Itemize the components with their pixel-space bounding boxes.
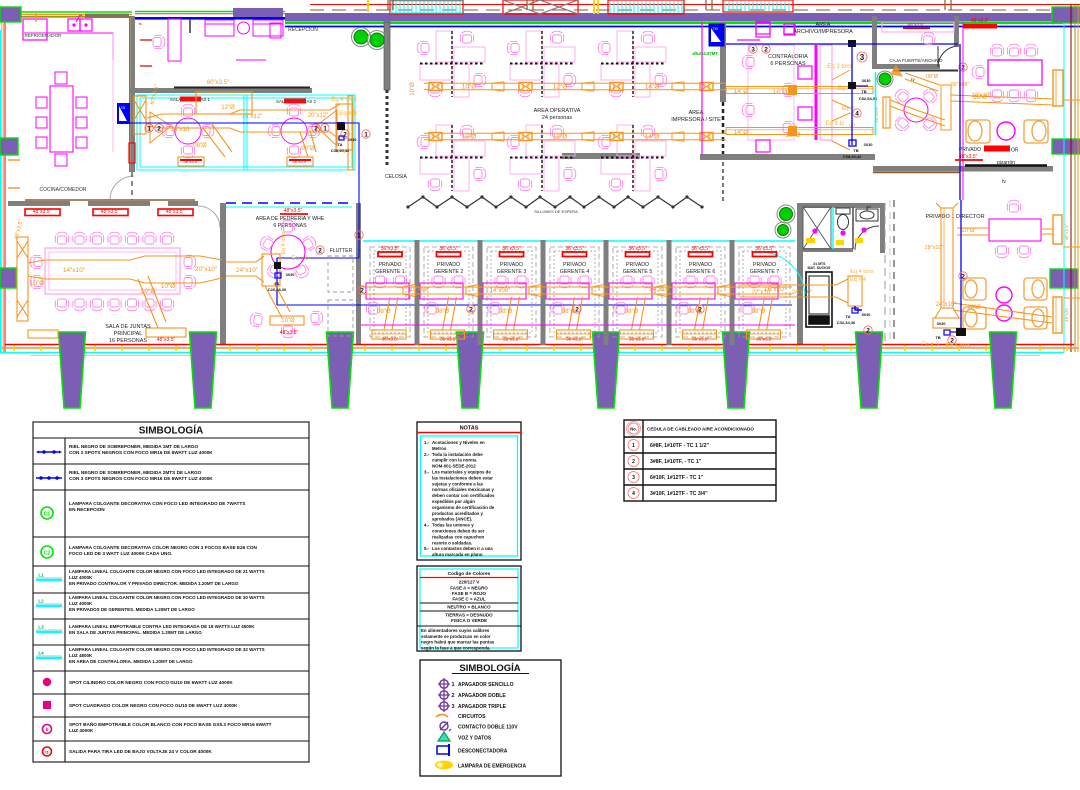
svg-text:TM: TM [712,27,717,31]
svg-text:n.: n. [139,21,143,26]
svg-text:SPOT BAÑO EMPOTRABLE COLOR BLA: SPOT BAÑO EMPOTRABLE COLOR BLANCO CON FO… [69,721,272,727]
svg-text:10"Ø: 10"Ø [462,84,477,91]
svg-text:C38,40,42: C38,40,42 [331,148,350,153]
svg-text:normas oficiales mexicanas y: normas oficiales mexicanas y [432,487,495,492]
svg-text:Todas las uniones y: Todas las uniones y [432,523,474,528]
svg-text:L4: L4 [38,651,44,656]
svg-text:FISICA O VERDE: FISICA O VERDE [451,618,487,623]
svg-text:48"x3.5": 48"x3.5" [971,18,990,24]
svg-text:deben contar con certificados: deben contar con certificados [432,493,495,498]
svg-text:3.-: 3.- [424,470,430,475]
svg-text:Los materiales y equipos de: Los materiales y equipos de [432,470,491,475]
svg-text:2: 2 [575,306,579,313]
svg-text:3: 3 [860,53,865,62]
svg-text:14"Ø: 14"Ø [734,129,749,136]
svg-text:En alimentadores cuyos calibre: En alimentadores cuyos calibres [421,628,490,633]
svg-text:1: 1 [357,232,361,239]
svg-text:10"Ø: 10"Ø [161,283,176,290]
svg-text:36"x3.5": 36"x3.5" [756,337,773,342]
svg-text:PRINCIPAL: PRINCIPAL [114,331,143,337]
svg-text:ARCHIVO/IMPRESORA: ARCHIVO/IMPRESORA [793,29,853,35]
svg-text:CEDULA DE CABLEADO AIRE ACONDI: CEDULA DE CABLEADO AIRE ACONDICIONADO [647,427,754,432]
svg-text:08"Ø: 08"Ø [377,309,391,315]
svg-text:36"x3.5": 36"x3.5" [629,337,646,342]
svg-text:MAT. SUCIOS: MAT. SUCIOS [808,266,831,270]
svg-text:36"x3.5": 36"x3.5" [184,159,199,164]
svg-text:12"Ø: 12"Ø [221,105,235,111]
svg-text:Codigo de Colores: Codigo de Colores [448,571,491,577]
svg-text:08"Ø: 08"Ø [193,143,207,149]
svg-text:conexiones deben de ser: conexiones deben de ser [432,529,485,534]
svg-text:24 personas: 24 personas [542,115,573,121]
svg-text:TA: TA [121,106,126,110]
svg-text:GERENTE 1: GERENTE 1 [375,269,405,275]
svg-text:b: b [46,727,49,732]
svg-text:altura marcada en plano: altura marcada en plano [432,552,483,557]
svg-text:10"Ø: 10"Ø [141,288,156,295]
svg-text:FASE A = NEGRO: FASE A = NEGRO [450,586,488,591]
svg-text:3X30: 3X30 [862,79,871,83]
svg-text:48"x3.5": 48"x3.5" [166,209,185,215]
svg-text:10"Ø: 10"Ø [30,280,45,287]
svg-text:08"Ø: 08"Ø [436,309,450,315]
svg-text:Eq 4 tons: Eq 4 tons [850,269,873,275]
svg-text:18'x10': 18'x10' [972,93,991,99]
svg-text:L1: L1 [38,573,44,578]
svg-text:.01 MTS: .01 MTS [813,262,827,266]
svg-text:NOM-001-SEDE-2012: NOM-001-SEDE-2012 [432,464,476,469]
svg-text:cumplir con la norma: cumplir con la norma [432,458,477,463]
svg-text:3#8F, 1#10TF, - TC 1": 3#8F, 1#10TF, - TC 1" [650,459,702,465]
svg-text:36"x3.5": 36"x3.5" [440,337,457,342]
svg-text:NOTAS: NOTAS [460,426,479,432]
svg-text:2: 2 [764,46,768,53]
svg-text:48"x3.5": 48"x3.5" [1064,223,1069,240]
svg-text:36"x3.5": 36"x3.5" [566,337,583,342]
svg-text:según la fase a que correspond: según la fase a que corresponda. [421,645,491,650]
svg-text:10"Ø: 10"Ø [462,134,477,141]
svg-text:TA: TA [274,281,279,286]
svg-text:2: 2 [632,459,635,465]
svg-text:LAMPARA LINEAL COLGANTE COLOR: LAMPARA LINEAL COLGANTE COLOR NEGRO CON … [69,595,265,600]
svg-text:Los contactos deben ir a una: Los contactos deben ir a una [432,546,493,551]
svg-text:22"x10": 22"x10" [752,290,773,296]
svg-text:Eq 4 tons: Eq 4 tons [281,231,287,254]
svg-text:pizarrón: pizarrón [997,160,1015,166]
svg-text:LUZ 4000K: LUZ 4000K [69,601,93,606]
svg-text:14"x10: 14"x10 [171,127,190,133]
svg-text:14"x10": 14"x10" [63,267,86,274]
svg-text:GERENTE 7: GERENTE 7 [750,269,780,275]
svg-text:altura1.67MT: altura1.67MT [692,51,718,56]
svg-text:1: 1 [451,682,454,688]
svg-text:PRIVADO: PRIVADO [753,262,776,268]
svg-text:36"x3.5": 36"x3.5" [692,337,709,342]
svg-text:negro habrá que marcar las pun: negro habrá que marcar las puntas [421,640,495,645]
svg-text:CON 2 SPOTS NEGROS CON FOCO MR: CON 2 SPOTS NEGROS CON FOCO MR16 DE 6WAT… [69,450,213,455]
svg-text:IMPRESORA / SITE: IMPRESORA / SITE [671,117,721,123]
svg-text:NEUTRO = BLANCO: NEUTRO = BLANCO [447,605,491,610]
svg-text:1.-: 1.- [424,440,430,445]
svg-text:Eq # 4: Eq # 4 [850,277,866,283]
svg-text:Toda la instalación debe: Toda la instalación debe [432,452,483,457]
svg-text:realizadas con capuchon: realizadas con capuchon [432,534,485,539]
svg-text:Eq 4 tons: Eq 4 tons [945,343,970,349]
svg-text:48"x3.5": 48"x3.5" [33,209,52,215]
svg-text:GERENTE 3: GERENTE 3 [497,269,527,275]
svg-text:24"x10": 24"x10" [236,267,259,274]
svg-text:2.-: 2.- [424,452,430,457]
svg-text:08"Ø: 08"Ø [499,309,513,315]
svg-text:VOZ Y DATOS: VOZ Y DATOS [458,736,492,742]
svg-text:TIERRAS = DESNUDO: TIERRAS = DESNUDO [445,613,493,618]
svg-text:C1: C1 [44,512,51,518]
svg-text:2: 2 [314,125,318,132]
svg-text:LAMPARA COLGANTE DECORATIVA CO: LAMPARA COLGANTE DECORATIVA COLOR NEGRO … [69,545,258,550]
svg-text:4: 4 [855,110,859,117]
svg-text:3X30: 3X30 [286,273,295,277]
svg-text:12"Ø: 12"Ø [553,84,568,91]
svg-text:No.: No. [630,427,637,432]
svg-text:L3: L3 [38,625,44,630]
svg-text:08"Ø: 08"Ø [625,309,639,315]
svg-text:TA: TA [845,314,850,319]
svg-text:EN PRIVADO CONTRALOR Y PRIVADO: EN PRIVADO CONTRALOR Y PRIVADO DIRECTOR.… [69,581,239,586]
svg-text:14"Ø: 14"Ø [645,84,660,91]
svg-text:TB: TB [853,148,858,153]
svg-text:TA: TA [337,142,342,147]
svg-text:16"Ø: 16"Ø [773,89,788,96]
svg-text:FASE B = ROJO: FASE B = ROJO [452,591,487,596]
svg-text:18"x10": 18"x10" [925,245,944,251]
svg-text:Acotaciones y Niveles en: Acotaciones y Niveles en [432,440,485,445]
svg-text:48"x3.5": 48"x3.5" [280,330,299,336]
svg-text:GERENTE 6: GERENTE 6 [686,269,716,275]
svg-text:LAMPARA LINEAL COLGANTE COLOR: LAMPARA LINEAL COLGANTE COLOR NEGRO CON … [69,569,265,574]
svg-text:SALA DE JUNTAS: SALA DE JUNTAS [105,324,151,330]
svg-text:08"Ø: 08"Ø [562,309,576,315]
svg-text:aprobados (ANCE).: aprobados (ANCE). [432,517,472,522]
svg-text:3#10F, 1#12TF - TC 3/4": 3#10F, 1#12TF - TC 3/4" [650,491,708,497]
svg-text:6#10F, 1#12TF - TC 1": 6#10F, 1#12TF - TC 1" [650,475,704,481]
svg-text:PRIVADO: PRIVADO [437,262,460,268]
svg-text:DESCONECTADORA: DESCONECTADORA [458,749,508,755]
svg-text:LAMPARA COLGANTE DECORATIVA C: LAMPARA COLGANTE DECORATIVA CON FOCO LED… [69,501,245,506]
svg-text:PRIVADO: PRIVADO [959,147,981,153]
svg-text:CON 3 SPOTS NEGROS CON FOCO MR: CON 3 SPOTS NEGROS CON FOCO MR16 DE 6WAT… [69,476,213,481]
svg-text:3X30: 3X30 [348,138,357,142]
svg-text:3: 3 [632,475,635,481]
svg-text:FASE C = AZUL: FASE C = AZUL [452,597,485,602]
svg-text:48"x35: 48"x35 [1064,308,1069,322]
svg-text:las instalaciones deben estar: las instalaciones deben estar [432,475,493,480]
svg-text:AREA DE PEDRERIA Y WHE: AREA DE PEDRERIA Y WHE [256,216,325,222]
svg-text:tv: tv [1002,179,1006,185]
svg-text:PRIVADO: PRIVADO [563,262,586,268]
svg-text:LAMPARA LINEAL COLGANTE COLOR: LAMPARA LINEAL COLGANTE COLOR NEGRO CON … [69,647,265,652]
svg-text:36"x3.5": 36"x3.5" [503,337,520,342]
svg-text:36"x3.5": 36"x3.5" [293,159,308,164]
svg-text:sujetas y conforme a las: sujetas y conforme a las [432,481,484,486]
svg-text:GERENTE 4: GERENTE 4 [560,269,590,275]
svg-text:REFRIGERADOR: REFRIGERADOR [24,33,62,38]
svg-text:1: 1 [364,131,368,138]
svg-text:08"Ø: 08"Ø [301,146,315,152]
svg-text:2: 2 [157,125,161,132]
svg-text:LAMPARA LINEAL EMPOTRABLE CONT: LAMPARA LINEAL EMPOTRABLE CONTRA LED INT… [69,624,255,629]
svg-text:C26,28,30: C26,28,30 [268,287,287,292]
svg-text:PRIVADO: PRIVADO [626,262,649,268]
svg-text:5X30: 5X30 [862,313,871,317]
svg-text:5.-: 5.- [424,546,430,551]
svg-text:Eq # 6: Eq # 6 [291,256,309,262]
svg-text:productos acreditados y: productos acreditados y [432,511,484,516]
svg-text:FLUTTER: FLUTTER [330,248,353,254]
svg-text:12"Ø: 12"Ø [553,134,568,141]
svg-text:C32,34,36: C32,34,36 [837,320,856,325]
svg-text:24"x3.5: 24"x3.5 [874,107,879,123]
svg-text:08"Ø: 08"Ø [752,309,766,315]
svg-text:SILLONES DE ESPERA: SILLONES DE ESPERA [534,209,578,214]
svg-text:1: 1 [323,125,327,132]
svg-text:PRIVADO 1 DIRECTOR: PRIVADO 1 DIRECTOR [925,214,984,220]
svg-text:Eq # 3: Eq # 3 [921,342,939,348]
svg-text:2: 2 [451,693,454,699]
svg-text:SALIDA PARA TIRA LED DE BAJO V: SALIDA PARA TIRA LED DE BAJO VOLTAJE 24 … [69,749,212,754]
svg-text:2: 2 [866,327,870,334]
svg-text:CAJA FUERTE/ARCHIVO: CAJA FUERTE/ARCHIVO [889,58,943,63]
svg-text:4: 4 [632,491,635,497]
svg-text:2: 2 [360,287,364,294]
svg-text:Eq 3 tons: Eq 3 tons [827,64,852,70]
svg-text:48"x3.5": 48"x3.5" [157,337,176,343]
svg-text:LUZ 4800K: LUZ 4800K [69,653,93,658]
svg-text:LUZ 4000K: LUZ 4000K [69,575,93,580]
svg-text:24"x10": 24"x10" [792,290,813,296]
svg-text:GERENTE 2: GERENTE 2 [434,269,464,275]
svg-text:2: 2 [961,273,965,280]
svg-text:20"x12": 20"x12" [308,113,329,119]
svg-text:2: 2 [469,306,473,313]
svg-text:APAGADOR TRIPLE: APAGADOR TRIPLE [458,704,507,710]
svg-text:APAGADOR DOBLE: APAGADOR DOBLE [458,693,506,699]
svg-text:SPOT CILINDRO COLOR NEGRO CON: SPOT CILINDRO COLOR NEGRO CON FOCO GU10 … [69,680,233,685]
svg-text:6#8F, 1#10TF - TC 1 1/2": 6#8F, 1#10TF - TC 1 1/2" [650,443,710,449]
svg-text:220/127 V: 220/127 V [459,580,480,585]
svg-text:resorte o soldadas.: resorte o soldadas. [432,540,472,545]
svg-text:Metros: Metros [432,446,447,451]
svg-text:45"x3.5": 45"x3.5" [908,22,925,27]
svg-text:1: 1 [147,125,151,132]
svg-text:SIMBOLOGÍA: SIMBOLOGÍA [459,663,520,674]
svg-text:CONTRALORIA: CONTRALORIA [768,54,808,60]
svg-text:3X30: 3X30 [937,322,946,326]
svg-text:PRIVADO: PRIVADO [379,262,402,268]
svg-text:18"Ø: 18"Ø [786,132,801,139]
svg-text:RECEPCION: RECEPCION [288,27,318,33]
svg-text:60"x3.5": 60"x3.5" [207,80,229,86]
svg-text:CELOSIA: CELOSIA [385,174,407,180]
svg-text:Eq 4 tons: Eq 4 tons [331,97,356,103]
svg-text:20"x10": 20"x10" [195,266,218,273]
svg-text:SIMBOLOGÍA: SIMBOLOGÍA [139,424,203,437]
svg-text:08"Ø: 08"Ø [926,74,939,80]
svg-text:3: 3 [451,704,454,710]
svg-text:Eq # 5: Eq # 5 [339,111,357,117]
svg-text:RIEL NEGRO DE SOBREPONER, MEDI: RIEL NEGRO DE SOBREPONER, MEDIDA 1MT DE … [69,444,199,449]
svg-text:3X30: 3X30 [864,143,873,147]
svg-text:AREA OPERATIVA: AREA OPERATIVA [534,108,581,114]
svg-text:C58,40,42: C58,40,42 [843,154,862,159]
svg-text:2: 2 [318,247,322,254]
svg-text:EN SALA DE JUNTAS PRINCIPAL. M: EN SALA DE JUNTAS PRINCIPAL. MEDIDA 1.20… [69,630,202,635]
svg-text:36"x3.5": 36"x3.5" [382,337,399,342]
svg-text:L2: L2 [38,599,44,604]
svg-text:10"x08": 10"x08" [410,287,431,293]
svg-text:COCINA/COMEDOR: COCINA/COMEDOR [40,187,87,193]
svg-text:Eq 3 to: Eq 3 to [825,121,845,127]
svg-text:1: 1 [632,443,635,449]
svg-text:TB: TB [935,335,940,340]
svg-text:14"Ø: 14"Ø [645,134,660,141]
svg-text:LAMPARA DE EMERGENCIA: LAMPARA DE EMERGENCIA [458,764,526,770]
svg-text:APAGADOR SENCILLO: APAGADOR SENCILLO [458,682,514,688]
svg-text:10"Ø: 10"Ø [281,318,295,324]
svg-text:EN RECEPCION: EN RECEPCION [69,507,105,512]
svg-text:GERENTE 5: GERENTE 5 [623,269,653,275]
svg-text:FOCO LED DE 3 WATT LUZ 4000K C: FOCO LED DE 3 WATT LUZ 4000K CADA UNO. [69,551,172,556]
svg-text:14"x08": 14"x08" [490,288,511,294]
svg-text:TB: TB [861,89,866,94]
svg-text:OR: OR [1011,148,1019,154]
svg-text:4.-: 4.- [424,523,430,528]
svg-text:14"Ø: 14"Ø [734,88,749,95]
svg-text:CONTACTO DOBLE 110V: CONTACTO DOBLE 110V [458,725,518,731]
svg-text:AREA: AREA [816,22,831,28]
svg-text:10"Ø: 10"Ø [410,82,416,96]
svg-text:10"Ø: 10"Ø [967,305,981,311]
svg-text:solamente se produzcan en colo: solamente se produzcan en color [421,634,491,639]
svg-text:PRIVADO: PRIVADO [500,262,523,268]
svg-text:3: 3 [751,46,755,53]
svg-text:expedidos por algún: expedidos por algún [432,499,475,504]
svg-text:EN AREA DE CONTRALORIA. MEDIDA: EN AREA DE CONTRALORIA. MEDIDA 1.20MT DE… [69,659,193,664]
svg-text:organismo de certificación de: organismo de certificación de [432,505,495,510]
svg-text:RIEL NEGRO DE SOBREPONER, MEDI: RIEL NEGRO DE SOBREPONER, MEDIDA 2MTS DE… [69,470,202,475]
svg-text:16 PERSONAS: 16 PERSONAS [109,338,148,344]
svg-text:2: 2 [698,306,702,313]
svg-text:SPOT CUADRADO COLOR NEGRO CON: SPOT CUADRADO COLOR NEGRO CON FOCO GU10 … [69,703,238,708]
svg-text:48"x3.5": 48"x3.5" [101,209,120,215]
svg-text:CIRCUITOS: CIRCUITOS [458,714,486,720]
svg-text:EN PRIVADOS DE GERENTES. MEDID: EN PRIVADOS DE GERENTES. MEDIDA 1.20MT D… [69,607,195,612]
svg-text:C2: C2 [44,551,51,557]
svg-text:LUZ 4000K: LUZ 4000K [69,728,94,733]
svg-text:PRIVADO: PRIVADO [689,262,712,268]
svg-text:10"Ø: 10"Ø [961,228,975,234]
svg-text:16"x12": 16"x12" [242,114,263,120]
svg-text:14"x10": 14"x10" [649,286,672,293]
